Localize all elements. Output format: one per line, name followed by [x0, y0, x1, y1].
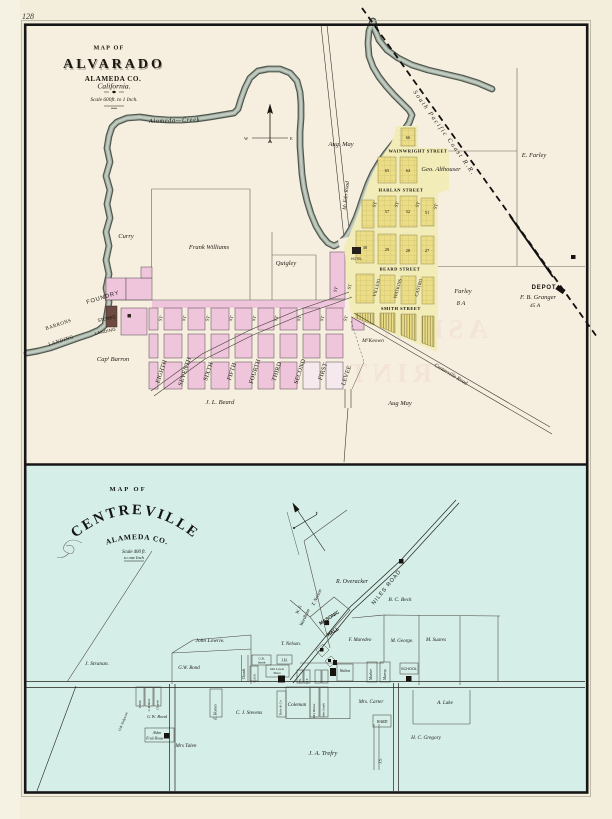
svg-text:Quigley: Quigley: [276, 260, 297, 267]
svg-text:Aug. May: Aug. May: [327, 141, 353, 148]
svg-text:Capt Barron: Capt Barron: [97, 355, 129, 363]
svg-text:Coleman: Coleman: [288, 702, 307, 708]
svg-text:128: 128: [22, 12, 34, 21]
svg-text:Hotel: Hotel: [273, 671, 280, 675]
svg-text:51: 51: [425, 210, 429, 215]
svg-text:Mrs Talen: Mrs Talen: [175, 743, 197, 749]
svg-text:HOTEL: HOTEL: [351, 257, 362, 261]
svg-text:R. Overacker: R. Overacker: [335, 579, 369, 585]
svg-text:E: E: [290, 136, 293, 141]
svg-text:Church: Church: [156, 700, 160, 710]
svg-text:Smith: Smith: [258, 661, 266, 665]
svg-text:A. Lake: A. Lake: [436, 700, 454, 706]
svg-text:DEPOT: DEPOT: [532, 285, 557, 291]
svg-text:Alden: Alden: [152, 731, 162, 735]
svg-text:J.H.: J.H.: [281, 658, 287, 663]
svg-text:Mrs Smith: Mrs Smith: [322, 703, 326, 718]
svg-text:Murray: Murray: [383, 669, 387, 681]
svg-text:G.W. Bond: G.W. Bond: [147, 714, 168, 719]
svg-text:Fruit House: Fruit House: [145, 737, 164, 741]
svg-text:MAP OF: MAP OF: [109, 486, 146, 493]
svg-text:California.: California.: [97, 82, 130, 91]
svg-text:ALVARADO: ALVARADO: [63, 57, 165, 72]
svg-text:SCHOOL: SCHOOL: [401, 667, 417, 671]
svg-text:F. B. Granger: F. B. Granger: [519, 294, 556, 301]
svg-text:to one Inch: to one Inch: [124, 555, 145, 560]
svg-text:WARD: WARD: [377, 719, 388, 724]
svg-text:J.S.: J.S.: [378, 758, 383, 764]
svg-text:Frank Williams: Frank Williams: [188, 244, 230, 251]
svg-text:BEARD STREET: BEARD STREET: [380, 267, 421, 272]
svg-text:Mrs. Carter: Mrs. Carter: [358, 699, 385, 705]
svg-text:McKeown: McKeown: [361, 337, 384, 345]
svg-text:Geo. Althouser: Geo. Althouser: [421, 166, 461, 173]
svg-text:Mrs Bilton: Mrs Bilton: [312, 703, 316, 719]
svg-text:F.B.B.: F.B.B.: [138, 700, 142, 709]
svg-text:Mosher: Mosher: [369, 668, 373, 681]
svg-text:T. Nelson.: T. Nelson.: [281, 642, 301, 647]
svg-text:C.B.Ham: C.B.Ham: [147, 698, 151, 711]
svg-text:H. C. Gregory: H. C. Gregory: [410, 735, 441, 741]
svg-text:MAP OF: MAP OF: [93, 45, 124, 52]
svg-text:T.N.: T.N.: [298, 678, 302, 684]
svg-text:45 A: 45 A: [530, 302, 541, 309]
svg-text:J. L. Beard: J. L. Beard: [206, 399, 235, 406]
svg-text:Farley: Farley: [453, 288, 471, 295]
svg-text:M.P.: M.P.: [305, 678, 309, 684]
svg-text:WAINWRIGHT STREET: WAINWRIGHT STREET: [388, 149, 447, 154]
svg-text:J. A. Trefry: J. A. Trefry: [309, 750, 338, 757]
svg-text:Scale 600ft. to 1 Inch.: Scale 600ft. to 1 Inch.: [90, 96, 137, 103]
svg-text:SMITH STREET: SMITH STREET: [381, 306, 421, 311]
svg-text:M. George.: M. George.: [390, 639, 414, 644]
svg-text:B. C. Beck: B. C. Beck: [388, 597, 412, 603]
svg-text:M. Suares: M. Suares: [425, 638, 446, 643]
svg-text:Aug May: Aug May: [387, 400, 412, 407]
svg-text:C.B.B.: C.B.B.: [253, 673, 257, 682]
svg-text:HARLAN STREET: HARLAN STREET: [379, 188, 424, 193]
svg-text:Tieks & Co: Tieks & Co: [279, 700, 283, 716]
svg-text:8 A: 8 A: [457, 300, 466, 307]
svg-text:E. Homes: E. Homes: [213, 704, 218, 721]
svg-text:Church: Church: [242, 669, 246, 680]
svg-text:C. J. Stevens: C. J. Stevens: [236, 710, 263, 716]
svg-text:F. Maredeo: F. Maredeo: [348, 638, 372, 643]
svg-text:E. Farley: E. Farley: [521, 152, 547, 159]
svg-text:J. Stranan.: J. Stranan.: [85, 661, 109, 667]
svg-text:G.W. Bond: G.W. Bond: [178, 666, 200, 671]
svg-text:Curry: Curry: [118, 233, 134, 240]
svg-text:John Lowrie.: John Lowrie.: [195, 638, 224, 644]
svg-text:RINT: RINT: [344, 358, 432, 388]
svg-text:52: 52: [406, 209, 410, 214]
svg-text:Walton: Walton: [340, 669, 351, 673]
